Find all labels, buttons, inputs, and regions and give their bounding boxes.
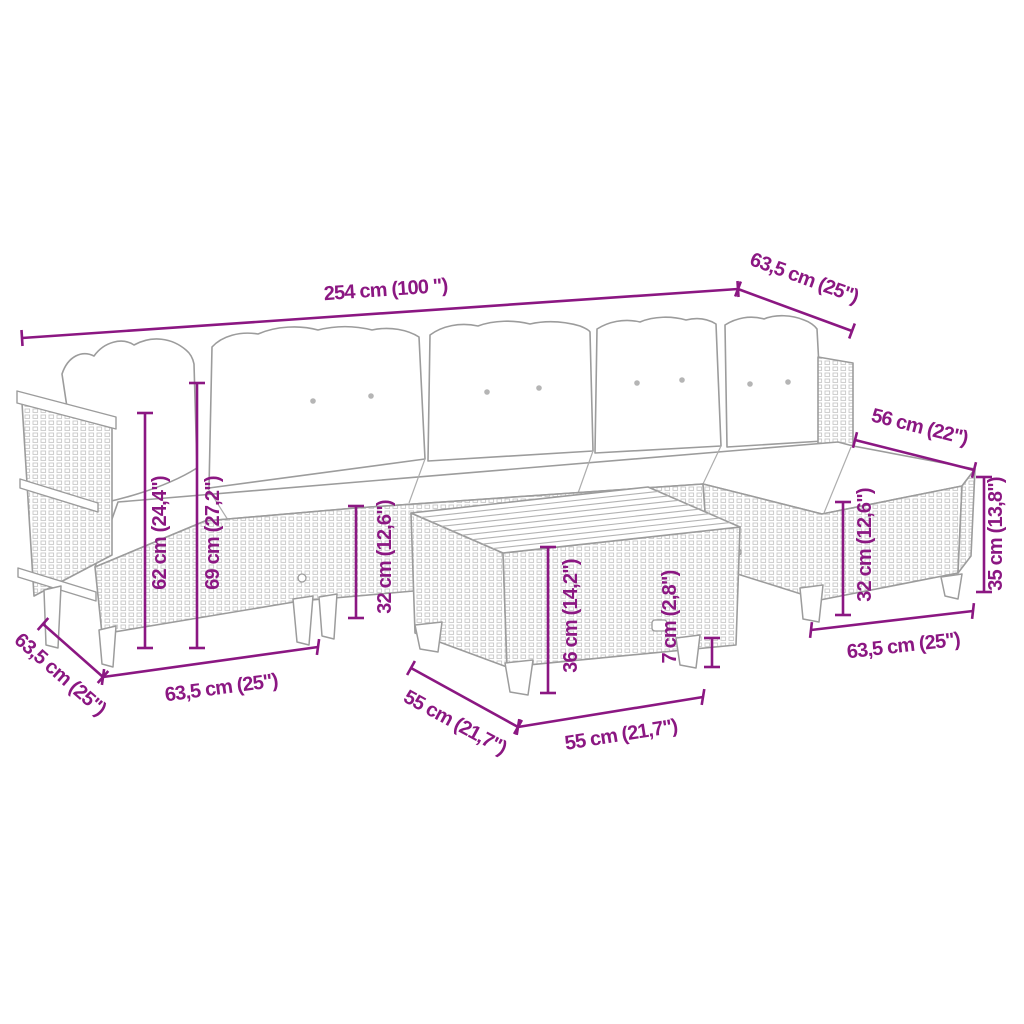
product-dimension-diagram: 254 cm (100 ") 63,5 cm (25") 56 cm (22")… xyxy=(0,0,1024,1024)
cushion-button xyxy=(536,385,542,391)
dim-stool-total-height: 35 cm (13,8") xyxy=(976,477,1007,592)
back-cushion xyxy=(428,321,593,461)
leg xyxy=(293,596,313,645)
dim-table-depth-label: 55 cm (21,7") xyxy=(400,686,510,760)
cushion-button xyxy=(368,393,374,399)
dim-stool-total-height-label: 35 cm (13,8") xyxy=(985,477,1007,591)
back-cushion xyxy=(725,316,823,447)
back-cushion xyxy=(595,317,721,453)
table-leg xyxy=(505,660,533,695)
cushion-button xyxy=(310,398,316,404)
dim-corner-module-depth-label: 63,5 cm (25") xyxy=(10,629,110,720)
back-cushion xyxy=(209,327,425,488)
leg xyxy=(319,594,337,639)
leg xyxy=(941,574,962,599)
dim-table-height-label: 36 cm (14,2") xyxy=(560,559,582,673)
cushion-button xyxy=(785,379,791,385)
dim-table-width: 55 cm (21,7") xyxy=(517,689,705,755)
dim-corner-module-width-label: 63,5 cm (25") xyxy=(163,670,279,707)
dim-stool-width-label: 63,5 cm (25") xyxy=(846,629,961,664)
cushion-button xyxy=(634,380,640,386)
base-hole xyxy=(298,574,306,582)
leg xyxy=(800,585,823,622)
dim-seat-height-label: 32 cm (12,6") xyxy=(374,500,396,614)
dim-table-depth: 55 cm (21,7") xyxy=(400,661,522,760)
dim-stool-top-depth-label: 56 cm (22") xyxy=(869,405,970,450)
dim-table-top-thickness-label: 7 cm (2,8") xyxy=(659,570,681,663)
dim-stool-width: 63,5 cm (25") xyxy=(810,603,974,663)
dim-total-height-label: 69 cm (27,2") xyxy=(202,476,224,590)
cushion-button xyxy=(484,389,490,395)
dim-table-width-label: 55 cm (21,7") xyxy=(563,715,679,755)
dim-stool-seat-height-label: 32 cm (12,6") xyxy=(854,488,876,602)
cushion-button xyxy=(747,381,753,387)
dim-sofa-length-label: 254 cm (100 ") xyxy=(323,275,448,305)
cushion-button xyxy=(679,377,685,383)
dim-corner-module-width: 63,5 cm (25") xyxy=(102,639,319,706)
table-leg xyxy=(415,622,442,652)
diagram-canvas: 254 cm (100 ") 63,5 cm (25") 56 cm (22")… xyxy=(0,0,1024,1024)
dim-corner-module-depth: 63,5 cm (25") xyxy=(10,618,110,720)
leg xyxy=(99,626,116,667)
dim-armrest-height-label: 62 cm (24,4") xyxy=(149,476,171,590)
